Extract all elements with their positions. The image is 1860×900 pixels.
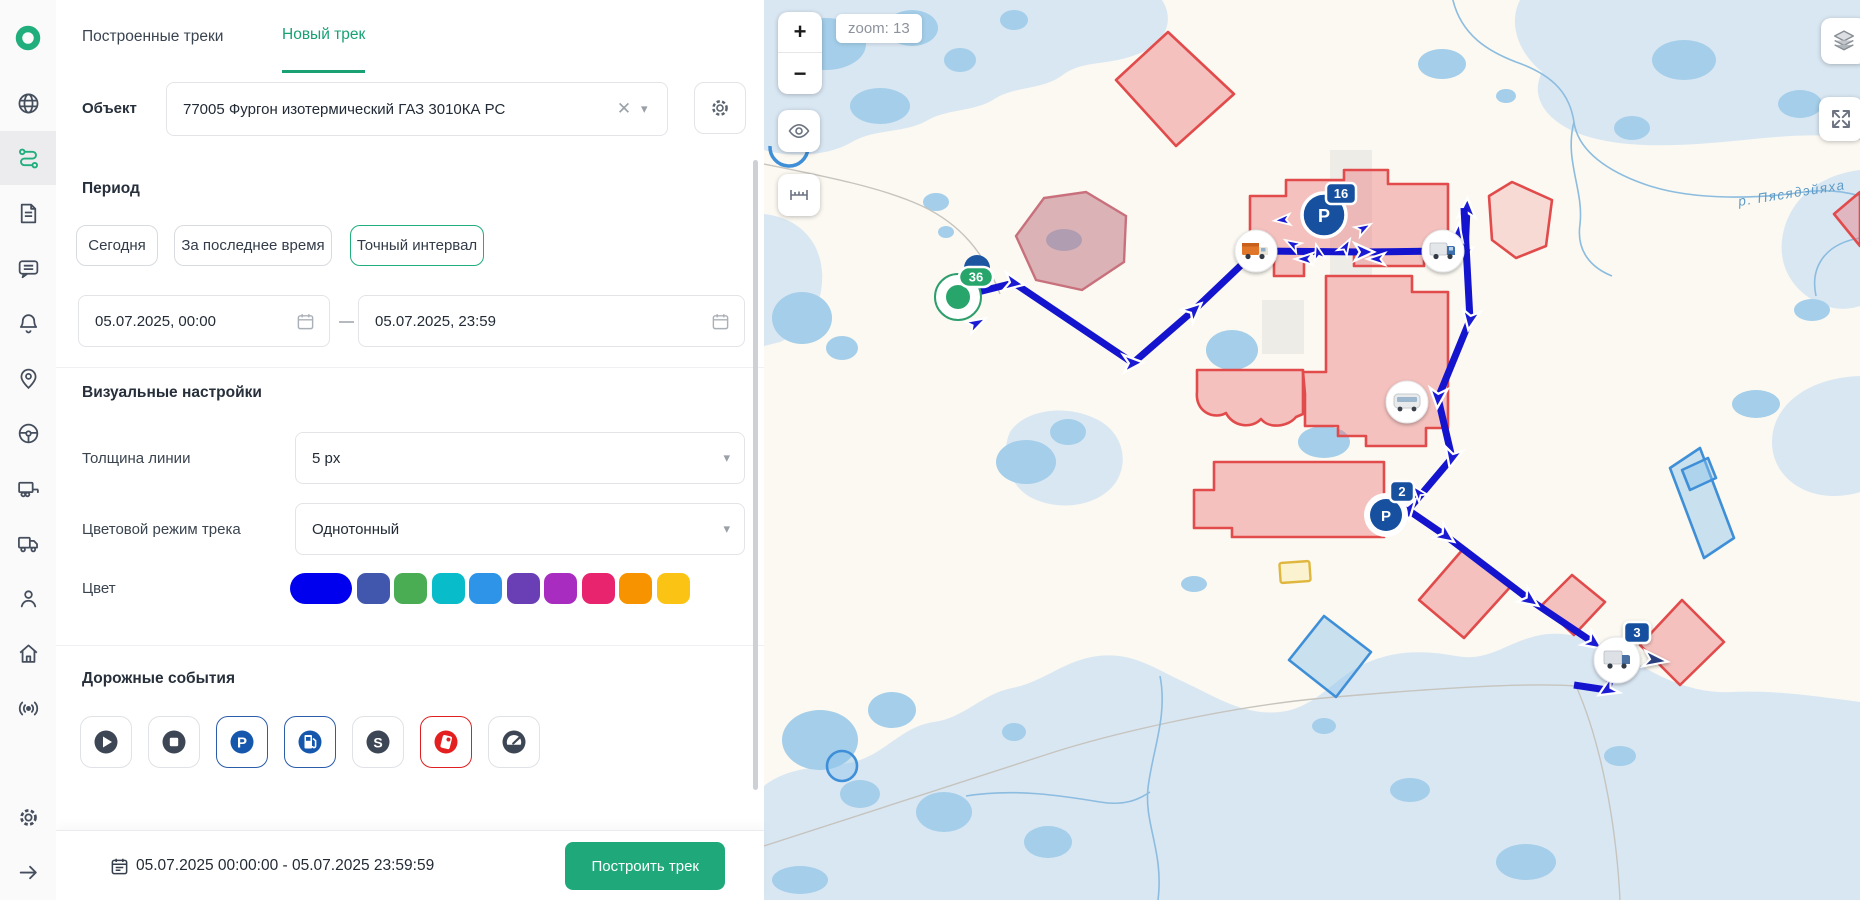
sidebar-item-messages[interactable] <box>0 241 56 295</box>
map-pin-icon <box>16 366 41 391</box>
trailer-icon <box>16 476 41 501</box>
parking-badge-count: 16 <box>1334 186 1348 201</box>
calendar-icon[interactable] <box>711 312 730 331</box>
panel-footer: 05.07.2025 00:00:00 - 05.07.2025 23:59:5… <box>56 830 764 900</box>
object-label: Объект <box>82 100 137 117</box>
chevron-down-icon: ▾ <box>723 521 730 537</box>
parking-glyph: P <box>1318 206 1330 226</box>
s-event-icon: S <box>363 727 393 757</box>
map-canvas[interactable]: р. Пясядэйяха <box>764 0 1860 900</box>
range-text: 05.07.2025 00:00:00 - 05.07.2025 23:59:5… <box>136 857 434 875</box>
chevron-down-icon: ▾ <box>641 101 667 117</box>
selected-range: 05.07.2025 00:00:00 - 05.07.2025 23:59:5… <box>110 831 434 900</box>
visibility-button[interactable] <box>778 110 820 152</box>
signal-icon <box>16 696 41 721</box>
logo-ring <box>15 25 41 51</box>
date-range-dash: — <box>339 313 354 330</box>
sidebar-item-expand[interactable] <box>0 845 56 899</box>
event-fuel-drain-button[interactable] <box>420 716 472 768</box>
color-label: Цвет <box>82 580 116 597</box>
vehicle-marker-orange[interactable] <box>1235 230 1277 272</box>
sidebar-item-geozones[interactable] <box>0 351 56 405</box>
globe-icon <box>16 91 41 116</box>
zoom-control: + − <box>778 12 822 94</box>
sidebar-item-documents[interactable] <box>0 186 56 240</box>
color-swatch-3[interactable] <box>432 573 465 604</box>
date-from-value: 05.07.2025, 00:00 <box>79 313 296 330</box>
event-speed-button[interactable] <box>488 716 540 768</box>
event-parking-button[interactable]: P <box>216 716 268 768</box>
color-swatch-0[interactable] <box>290 573 352 604</box>
sidebar-item-users[interactable] <box>0 571 56 625</box>
sidebar-item-sensors[interactable] <box>0 681 56 735</box>
calendar-icon[interactable] <box>296 312 315 331</box>
period-heading: Период <box>82 180 140 198</box>
tab-new-track[interactable]: Новый трек <box>282 0 365 73</box>
eye-icon <box>787 119 811 143</box>
parking-glyph: P <box>1381 508 1391 525</box>
color-mode-value: Однотонный <box>296 521 723 538</box>
road-events-heading: Дорожные события <box>82 670 235 688</box>
layers-button[interactable] <box>1821 18 1860 64</box>
zoom-in-button[interactable]: + <box>778 12 822 53</box>
document-icon <box>16 201 41 226</box>
object-settings-button[interactable] <box>694 82 746 134</box>
svg-text:S: S <box>373 734 382 750</box>
fuel-drain-icon <box>431 727 461 757</box>
parking-icon: P <box>227 727 257 757</box>
color-swatch-9[interactable] <box>657 573 690 604</box>
preset-today[interactable]: Сегодня <box>76 225 158 266</box>
color-swatch-8[interactable] <box>619 573 652 604</box>
color-swatch-7[interactable] <box>582 573 615 604</box>
truck-badge-count: 3 <box>1633 625 1640 640</box>
bell-icon <box>16 311 41 336</box>
sidebar-item-home[interactable] <box>0 626 56 680</box>
color-swatch-4[interactable] <box>469 573 502 604</box>
preset-recent[interactable]: За последнее время <box>174 225 332 266</box>
zoom-level-label: zoom: 13 <box>836 14 922 43</box>
date-to-input[interactable]: 05.07.2025, 23:59 <box>358 295 745 347</box>
sidebar <box>0 0 56 900</box>
tab-built-tracks[interactable]: Построенные треки <box>82 0 223 73</box>
fuel-icon <box>295 727 325 757</box>
fullscreen-button[interactable] <box>1819 97 1860 141</box>
color-swatch-2[interactable] <box>394 573 427 604</box>
truck-icon <box>16 531 41 556</box>
user-icon <box>16 586 41 611</box>
speedometer-icon <box>499 727 529 757</box>
date-from-input[interactable]: 05.07.2025, 00:00 <box>78 295 330 347</box>
fullscreen-icon <box>1829 107 1853 131</box>
route-icon <box>16 146 41 171</box>
home-icon <box>16 641 41 666</box>
sidebar-item-tracks[interactable] <box>0 131 56 185</box>
ruler-button[interactable] <box>778 174 820 216</box>
color-swatch-1[interactable] <box>357 573 390 604</box>
color-mode-select[interactable]: Однотонный ▾ <box>295 503 745 555</box>
sidebar-item-settings[interactable] <box>0 790 56 844</box>
gear-icon <box>16 805 41 830</box>
arrow-right-icon <box>16 860 41 885</box>
stop-icon <box>159 727 189 757</box>
build-track-button[interactable]: Построить трек <box>565 842 725 890</box>
calendar-icon <box>110 857 129 876</box>
map[interactable]: р. Пясядэйяха <box>764 0 1860 900</box>
start-badge-count: 36 <box>969 270 983 285</box>
sidebar-item-vehicles[interactable] <box>0 516 56 570</box>
vehicle-marker-van[interactable] <box>1386 381 1428 423</box>
track-builder-panel: Построенные треки Новый трек Объект 7700… <box>56 0 764 900</box>
event-stop-button[interactable] <box>148 716 200 768</box>
date-to-value: 05.07.2025, 23:59 <box>359 313 711 330</box>
object-value: 77005 Фургон изотермический ГАЗ 3010КА Р… <box>167 101 607 118</box>
vehicle-marker-blue[interactable] <box>1422 230 1464 272</box>
sidebar-item-notifications[interactable] <box>0 296 56 350</box>
ruler-icon <box>787 183 811 207</box>
color-swatch-6[interactable] <box>544 573 577 604</box>
zoom-out-button[interactable]: − <box>778 53 822 94</box>
event-fuel-button[interactable] <box>284 716 336 768</box>
line-width-value: 5 px <box>296 450 723 467</box>
sidebar-item-trailers[interactable] <box>0 461 56 515</box>
color-mode-label: Цветовой режим трека <box>82 521 241 538</box>
panel-scrollbar[interactable] <box>753 160 758 790</box>
app-logo[interactable] <box>0 18 56 58</box>
steering-wheel-icon <box>16 421 41 446</box>
visual-settings-heading: Визуальные настройки <box>82 384 262 402</box>
gear-icon <box>708 96 732 120</box>
event-play-button[interactable] <box>80 716 132 768</box>
play-icon <box>91 727 121 757</box>
line-width-label: Толщина линии <box>82 450 190 467</box>
chevron-down-icon: ▾ <box>723 450 730 466</box>
sidebar-item-globe[interactable] <box>0 76 56 130</box>
preset-exact-interval[interactable]: Точный интервал <box>350 225 484 266</box>
chat-icon <box>16 256 41 281</box>
color-swatch-5[interactable] <box>507 573 540 604</box>
line-width-select[interactable]: 5 px ▾ <box>295 432 745 484</box>
clear-icon[interactable]: ✕ <box>607 99 641 119</box>
event-s-button[interactable]: S <box>352 716 404 768</box>
parking-badge-count: 2 <box>1398 484 1405 499</box>
color-swatches <box>290 572 694 604</box>
geofence-yellow[interactable] <box>1279 561 1310 583</box>
panel-tabs: Построенные треки Новый трек <box>56 0 764 76</box>
svg-text:P: P <box>237 735 247 752</box>
layers-icon <box>1830 27 1858 55</box>
object-select[interactable]: 77005 Фургон изотермический ГАЗ 3010КА Р… <box>166 82 668 136</box>
sidebar-item-driving[interactable] <box>0 406 56 460</box>
